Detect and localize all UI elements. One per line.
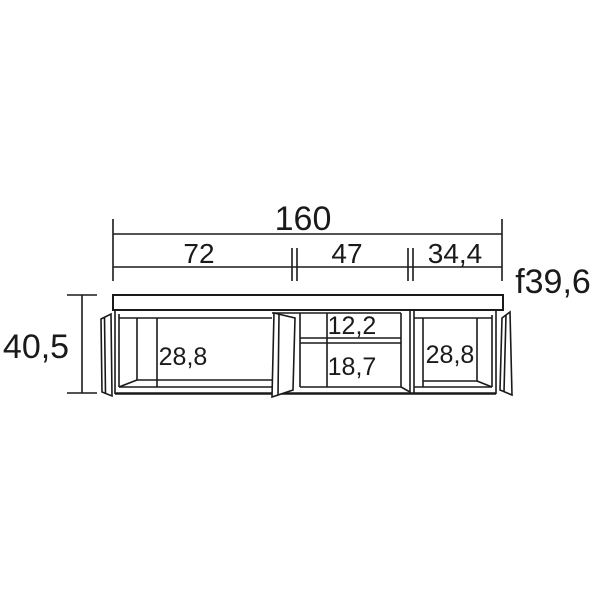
furniture-dimension-drawing: 160 72 47 34,4 f39,6 40,5 bbox=[0, 0, 600, 600]
section-width-label-middle: 47 bbox=[331, 238, 362, 269]
right-compartment-width-label: 28,8 bbox=[426, 341, 475, 369]
section-widths-dimension: 72 47 34,4 bbox=[113, 238, 502, 281]
section-width-label-left: 72 bbox=[183, 238, 214, 269]
middle-bottom-shelf-label: 18,7 bbox=[328, 353, 377, 381]
left-door-open bbox=[101, 314, 112, 396]
left-door-thickness-edge bbox=[105, 318, 106, 395]
section-width-label-right: 34,4 bbox=[428, 238, 483, 269]
cabinet-top-panel bbox=[113, 295, 503, 310]
height-label: 40,5 bbox=[3, 328, 69, 366]
middle-door-open bbox=[272, 313, 295, 397]
depth-label: f39,6 bbox=[515, 263, 591, 301]
left-compartment: 28,8 bbox=[119, 318, 272, 387]
height-dimension: 40,5 bbox=[3, 295, 97, 393]
cabinet-body: 28,8 12,2 18,7 bbox=[101, 295, 512, 397]
perspective-diagonal bbox=[401, 387, 410, 392]
right-compartment: 28,8 bbox=[414, 318, 492, 387]
total-width-label: 160 bbox=[275, 200, 332, 238]
middle-top-shelf-label: 12,2 bbox=[328, 312, 377, 340]
perspective-diagonal bbox=[119, 380, 137, 387]
left-compartment-width-label: 28,8 bbox=[159, 343, 208, 371]
technical-drawing-page: 160 72 47 34,4 f39,6 40,5 bbox=[0, 0, 600, 600]
middle-door-thickness-edge bbox=[278, 315, 279, 396]
perspective-diagonal bbox=[477, 381, 492, 387]
